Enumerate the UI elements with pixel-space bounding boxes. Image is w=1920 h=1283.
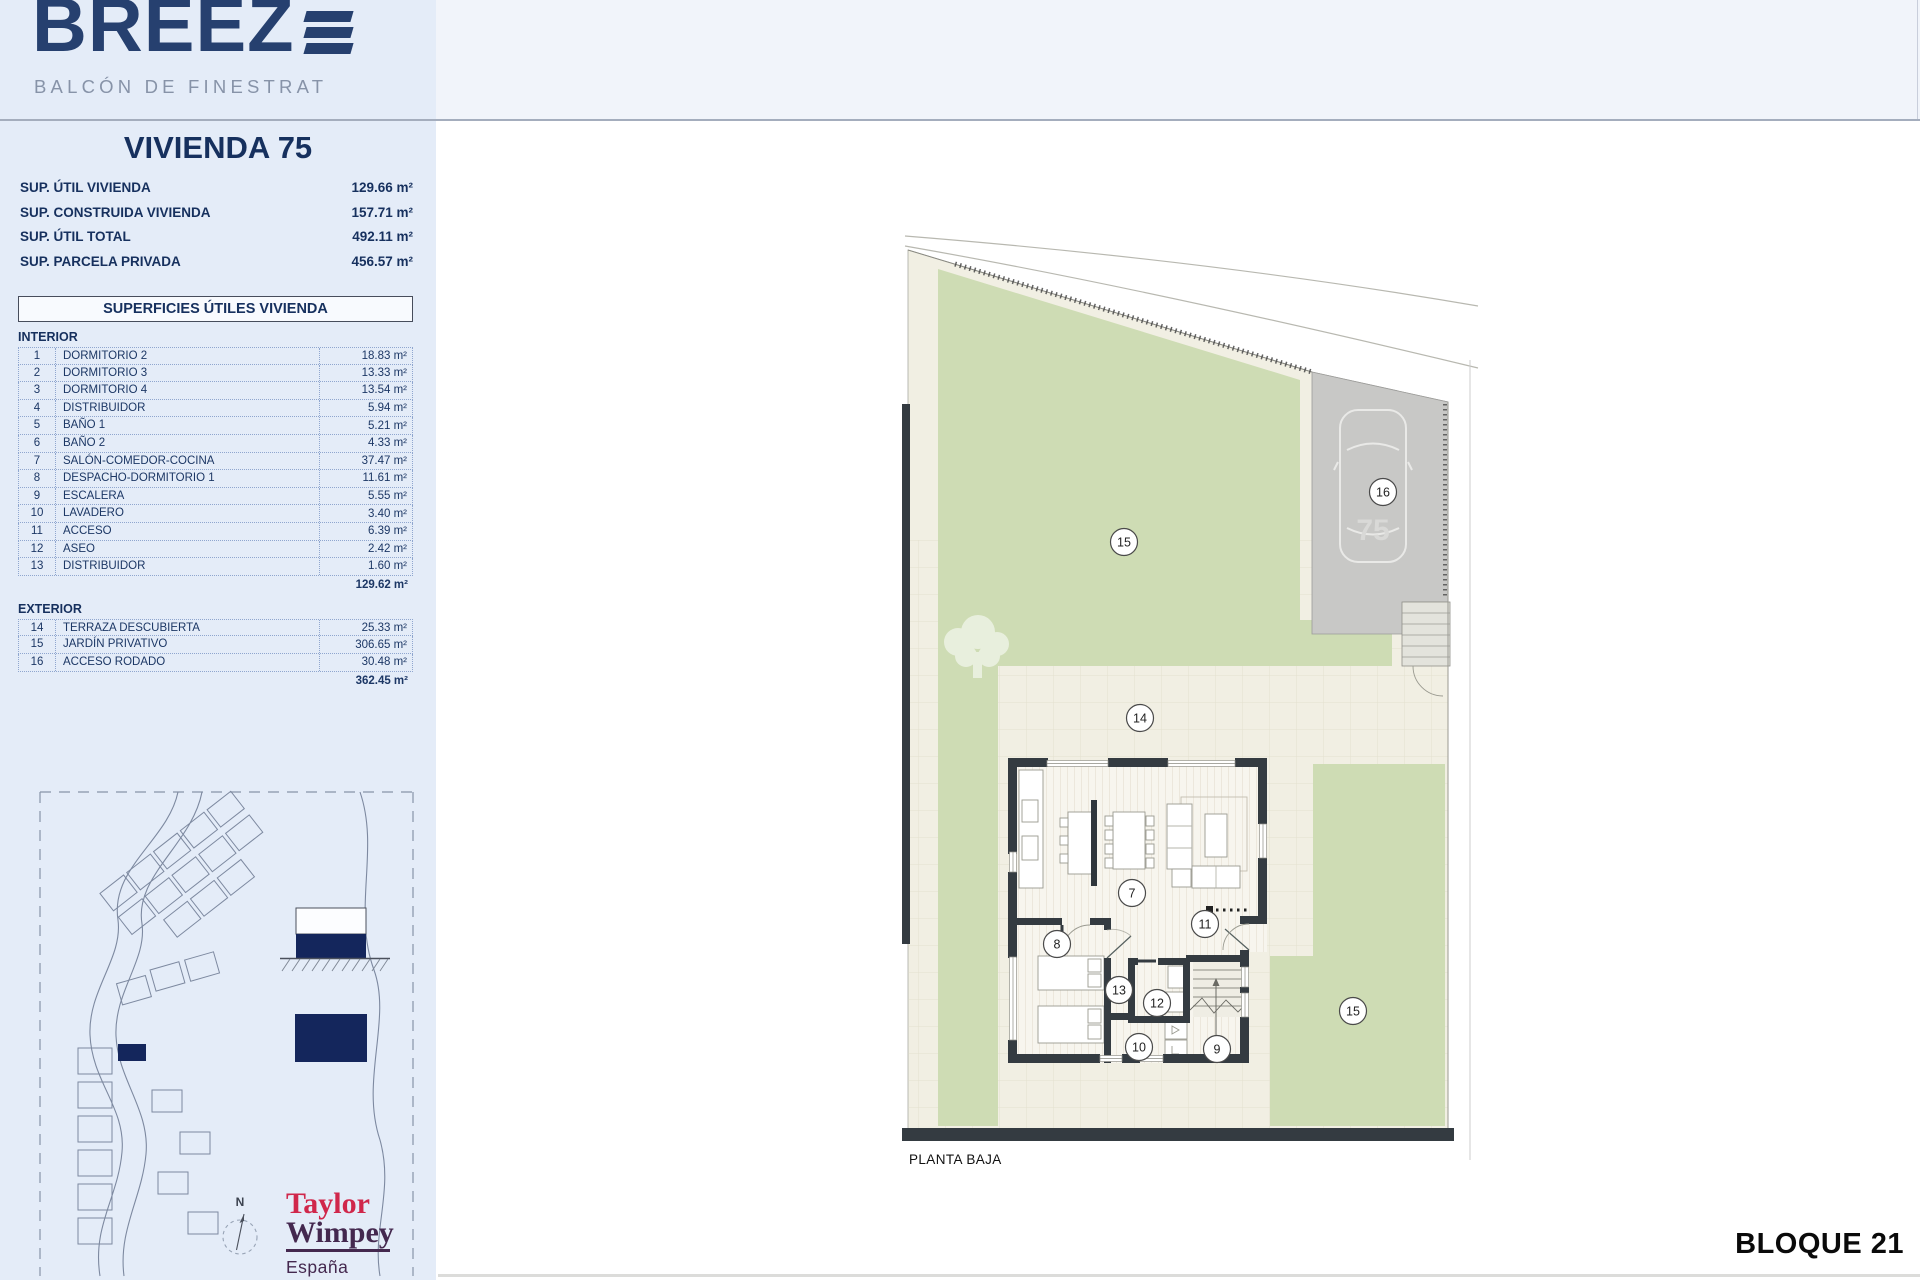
site-map-highlight-unit bbox=[118, 1044, 146, 1061]
table-row: 3DORMITORIO 413.54 m² bbox=[18, 382, 413, 400]
row-value: 25.33 m² bbox=[320, 622, 412, 634]
row-value: 2.42 m² bbox=[320, 543, 412, 555]
summary-label: SUP. ÚTIL TOTAL bbox=[20, 225, 131, 250]
top-band bbox=[436, 0, 1920, 120]
row-name: ASEO bbox=[56, 541, 320, 558]
row-name: BAÑO 1 bbox=[56, 417, 320, 434]
table-row: 10LAVADERO3.40 m² bbox=[18, 505, 413, 523]
floor-plan: 75 bbox=[890, 210, 1480, 1185]
marker-stairs-9: 9 bbox=[1204, 1036, 1231, 1063]
svg-text:8: 8 bbox=[1054, 938, 1061, 952]
svg-text:12: 12 bbox=[1150, 997, 1164, 1011]
boundary-wall-bottom bbox=[902, 1128, 1454, 1141]
marker-living-7: 7 bbox=[1119, 880, 1146, 907]
marker-hall-13: 13 bbox=[1106, 977, 1133, 1004]
row-num: 8 bbox=[19, 470, 56, 487]
summary-row: SUP. ÚTIL VIVIENDA 129.66 m² bbox=[20, 176, 413, 201]
row-name: LAVADERO bbox=[56, 505, 320, 522]
row-num: 4 bbox=[19, 400, 56, 417]
row-name: DORMITORIO 3 bbox=[56, 365, 320, 382]
table-row: 2DORMITORIO 313.33 m² bbox=[18, 365, 413, 383]
summary-value: 456.57 m² bbox=[351, 250, 413, 275]
svg-text:10: 10 bbox=[1132, 1041, 1146, 1055]
row-value: 37.47 m² bbox=[320, 455, 412, 467]
table-row: 16ACCESO RODADO30.48 m² bbox=[18, 654, 413, 672]
row-value: 11.61 m² bbox=[320, 472, 412, 484]
row-name: ACCESO bbox=[56, 523, 320, 540]
row-num: 1 bbox=[19, 348, 56, 364]
summary-label: SUP. ÚTIL VIVIENDA bbox=[20, 176, 151, 201]
table-row: 15JARDÍN PRIVATIVO306.65 m² bbox=[18, 636, 413, 654]
interior-section-label: INTERIOR bbox=[18, 330, 413, 347]
north-compass: N bbox=[205, 1190, 275, 1271]
svg-text:7: 7 bbox=[1129, 887, 1136, 901]
tw-logo-wimpey: Wimpey bbox=[286, 1218, 436, 1248]
svg-text:15: 15 bbox=[1117, 536, 1131, 550]
summary-value: 492.11 m² bbox=[352, 225, 413, 250]
table-row: 4DISTRIBUIDOR5.94 m² bbox=[18, 400, 413, 418]
row-num: 13 bbox=[19, 558, 56, 575]
summary-row: SUP. PARCELA PRIVADA 456.57 m² bbox=[20, 250, 413, 275]
row-value: 5.55 m² bbox=[320, 490, 412, 502]
exterior-total: 362.45 m² bbox=[18, 672, 413, 691]
map-house-cluster-upper bbox=[78, 791, 281, 1244]
svg-text:13: 13 bbox=[1112, 984, 1126, 998]
page-edge-line bbox=[1917, 0, 1918, 120]
tw-logo-taylor: Taylor bbox=[286, 1190, 436, 1218]
row-num: 2 bbox=[19, 365, 56, 382]
footer-line bbox=[438, 1274, 1920, 1277]
tw-logo-underline bbox=[286, 1249, 390, 1252]
table-row: 9ESCALERA5.55 m² bbox=[18, 488, 413, 506]
marker-garden-15: 15 bbox=[1111, 529, 1138, 556]
marker-side-garden-15: 15 bbox=[1340, 998, 1367, 1025]
marker-driveway-16: 16 bbox=[1370, 479, 1397, 506]
summary-value: 157.71 m² bbox=[351, 201, 413, 226]
row-name: BAÑO 2 bbox=[56, 435, 320, 452]
svg-text:15: 15 bbox=[1346, 1005, 1360, 1019]
row-num: 14 bbox=[19, 620, 56, 636]
table-row: 6BAÑO 24.33 m² bbox=[18, 435, 413, 453]
svg-text:9: 9 bbox=[1214, 1043, 1221, 1057]
row-num: 7 bbox=[19, 453, 56, 470]
breeze-logo-text: BREEZ bbox=[32, 0, 295, 62]
summary-label: SUP. PARCELA PRIVADA bbox=[20, 250, 181, 275]
marker-study-8: 8 bbox=[1044, 931, 1071, 958]
table-row: 12ASEO2.42 m² bbox=[18, 541, 413, 559]
block-legend-swatch bbox=[295, 1014, 367, 1062]
development-subtitle: BALCÓN DE FINESTRAT bbox=[34, 76, 327, 98]
media-wall bbox=[1091, 800, 1097, 886]
row-value: 6.39 m² bbox=[320, 525, 412, 537]
svg-text:14: 14 bbox=[1133, 712, 1147, 726]
row-value: 13.33 m² bbox=[320, 367, 412, 379]
exterior-section-label: EXTERIOR bbox=[18, 602, 413, 619]
row-name: JARDÍN PRIVATIVO bbox=[56, 636, 320, 653]
boundary-wall-left bbox=[902, 404, 910, 944]
row-num: 5 bbox=[19, 417, 56, 434]
row-name: DORMITORIO 2 bbox=[56, 348, 320, 364]
header-divider-line bbox=[0, 119, 1920, 121]
summary-label: SUP. CONSTRUIDA VIVIENDA bbox=[20, 201, 211, 226]
row-name: DORMITORIO 4 bbox=[56, 382, 320, 399]
table-row: 1DORMITORIO 218.83 m² bbox=[18, 347, 413, 365]
row-value: 5.94 m² bbox=[320, 402, 412, 414]
block-label: BLOQUE 21 bbox=[1735, 1228, 1904, 1261]
row-value: 1.60 m² bbox=[320, 560, 412, 572]
unit-title: VIVIENDA 75 bbox=[0, 130, 436, 166]
row-value: 18.83 m² bbox=[320, 350, 412, 362]
compass-north-label: N bbox=[236, 1195, 245, 1209]
row-num: 15 bbox=[19, 636, 56, 653]
row-value: 306.65 m² bbox=[320, 639, 412, 651]
row-name: DISTRIBUIDOR bbox=[56, 558, 320, 575]
tw-logo-espana: España bbox=[286, 1257, 436, 1278]
breeze-logo: BREEZ bbox=[32, 0, 352, 62]
row-num: 6 bbox=[19, 435, 56, 452]
row-num: 10 bbox=[19, 505, 56, 522]
surface-summary: SUP. ÚTIL VIVIENDA 129.66 m² SUP. CONSTR… bbox=[20, 176, 413, 274]
row-num: 16 bbox=[19, 654, 56, 671]
row-num: 12 bbox=[19, 541, 56, 558]
marker-laundry-10: 10 bbox=[1126, 1034, 1153, 1061]
row-name: TERRAZA DESCUBIERTA bbox=[56, 620, 320, 636]
table-row: 8DESPACHO-DORMITORIO 111.61 m² bbox=[18, 470, 413, 488]
row-num: 9 bbox=[19, 488, 56, 505]
marker-terrace-14: 14 bbox=[1127, 705, 1154, 732]
row-num: 11 bbox=[19, 523, 56, 540]
table-row: 5BAÑO 15.21 m² bbox=[18, 417, 413, 435]
section-diagram bbox=[280, 902, 390, 979]
table-row: 11ACCESO6.39 m² bbox=[18, 523, 413, 541]
row-value: 4.33 m² bbox=[320, 437, 412, 449]
breeze-logo-e-bars-icon bbox=[305, 6, 352, 59]
row-name: ESCALERA bbox=[56, 488, 320, 505]
row-name: ACCESO RODADO bbox=[56, 654, 320, 671]
row-name: DISTRIBUIDOR bbox=[56, 400, 320, 417]
info-sidebar: BREEZ BALCÓN DE FINESTRAT VIVIENDA 75 SU… bbox=[0, 0, 436, 1280]
row-value: 13.54 m² bbox=[320, 384, 412, 396]
svg-text:11: 11 bbox=[1199, 918, 1212, 932]
table-row: 13DISTRIBUIDOR1.60 m² bbox=[18, 558, 413, 576]
row-name: SALÓN-COMEDOR-COCINA bbox=[56, 453, 320, 470]
plot-number-on-driveway: 75 bbox=[1356, 514, 1389, 547]
row-name: DESPACHO-DORMITORIO 1 bbox=[56, 470, 320, 487]
summary-row: SUP. CONSTRUIDA VIVIENDA 157.71 m² bbox=[20, 201, 413, 226]
table-row: 7SALÓN-COMEDOR-COCINA37.47 m² bbox=[18, 453, 413, 471]
areas-table: INTERIOR 1DORMITORIO 218.83 m² 2DORMITOR… bbox=[18, 330, 413, 691]
row-num: 3 bbox=[19, 382, 56, 399]
exterior-steps bbox=[1402, 602, 1450, 666]
interior-total: 129.62 m² bbox=[18, 576, 413, 595]
summary-row: SUP. ÚTIL TOTAL 492.11 m² bbox=[20, 225, 413, 250]
floor-label: PLANTA BAJA bbox=[909, 1152, 1002, 1167]
marker-entry-11: 11 bbox=[1192, 911, 1219, 938]
row-value: 30.48 m² bbox=[320, 656, 412, 668]
areas-table-header: SUPERFICIES ÚTILES VIVIENDA bbox=[18, 296, 413, 322]
summary-value: 129.66 m² bbox=[351, 176, 413, 201]
driveway: 75 bbox=[1312, 372, 1450, 666]
row-value: 3.40 m² bbox=[320, 508, 412, 520]
taylor-wimpey-logo: Taylor Wimpey España bbox=[286, 1190, 436, 1278]
row-value: 5.21 m² bbox=[320, 420, 412, 432]
marker-wc-12: 12 bbox=[1144, 990, 1171, 1017]
svg-text:16: 16 bbox=[1376, 486, 1390, 500]
table-row: 14TERRAZA DESCUBIERTA25.33 m² bbox=[18, 619, 413, 637]
